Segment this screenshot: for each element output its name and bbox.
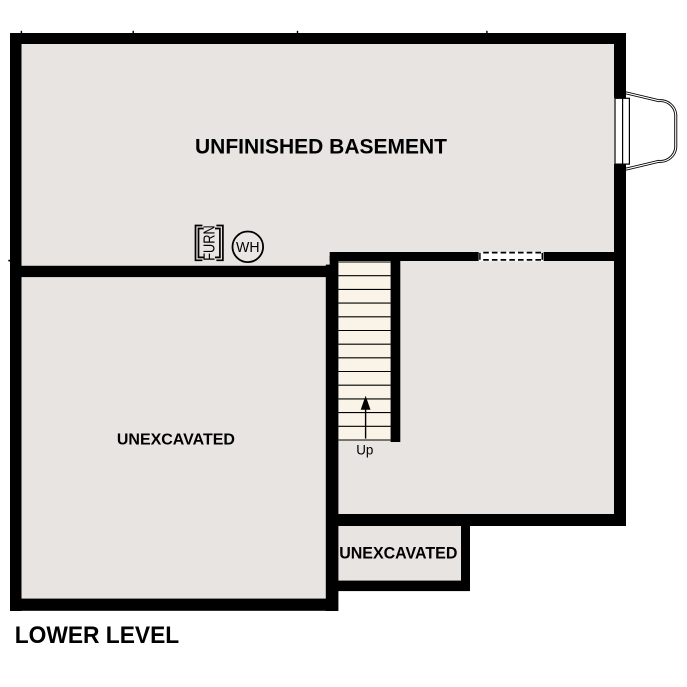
svg-text:WH: WH bbox=[236, 239, 260, 256]
svg-text:LOWER LEVEL: LOWER LEVEL bbox=[15, 622, 180, 649]
svg-text:Up: Up bbox=[356, 442, 373, 457]
svg-text:UNEXCAVATED: UNEXCAVATED bbox=[339, 544, 458, 562]
svg-text:UNEXCAVATED: UNEXCAVATED bbox=[117, 431, 235, 448]
svg-text:UNFINISHED BASEMENT: UNFINISHED BASEMENT bbox=[195, 134, 447, 158]
svg-text:FURN: FURN bbox=[201, 225, 218, 261]
